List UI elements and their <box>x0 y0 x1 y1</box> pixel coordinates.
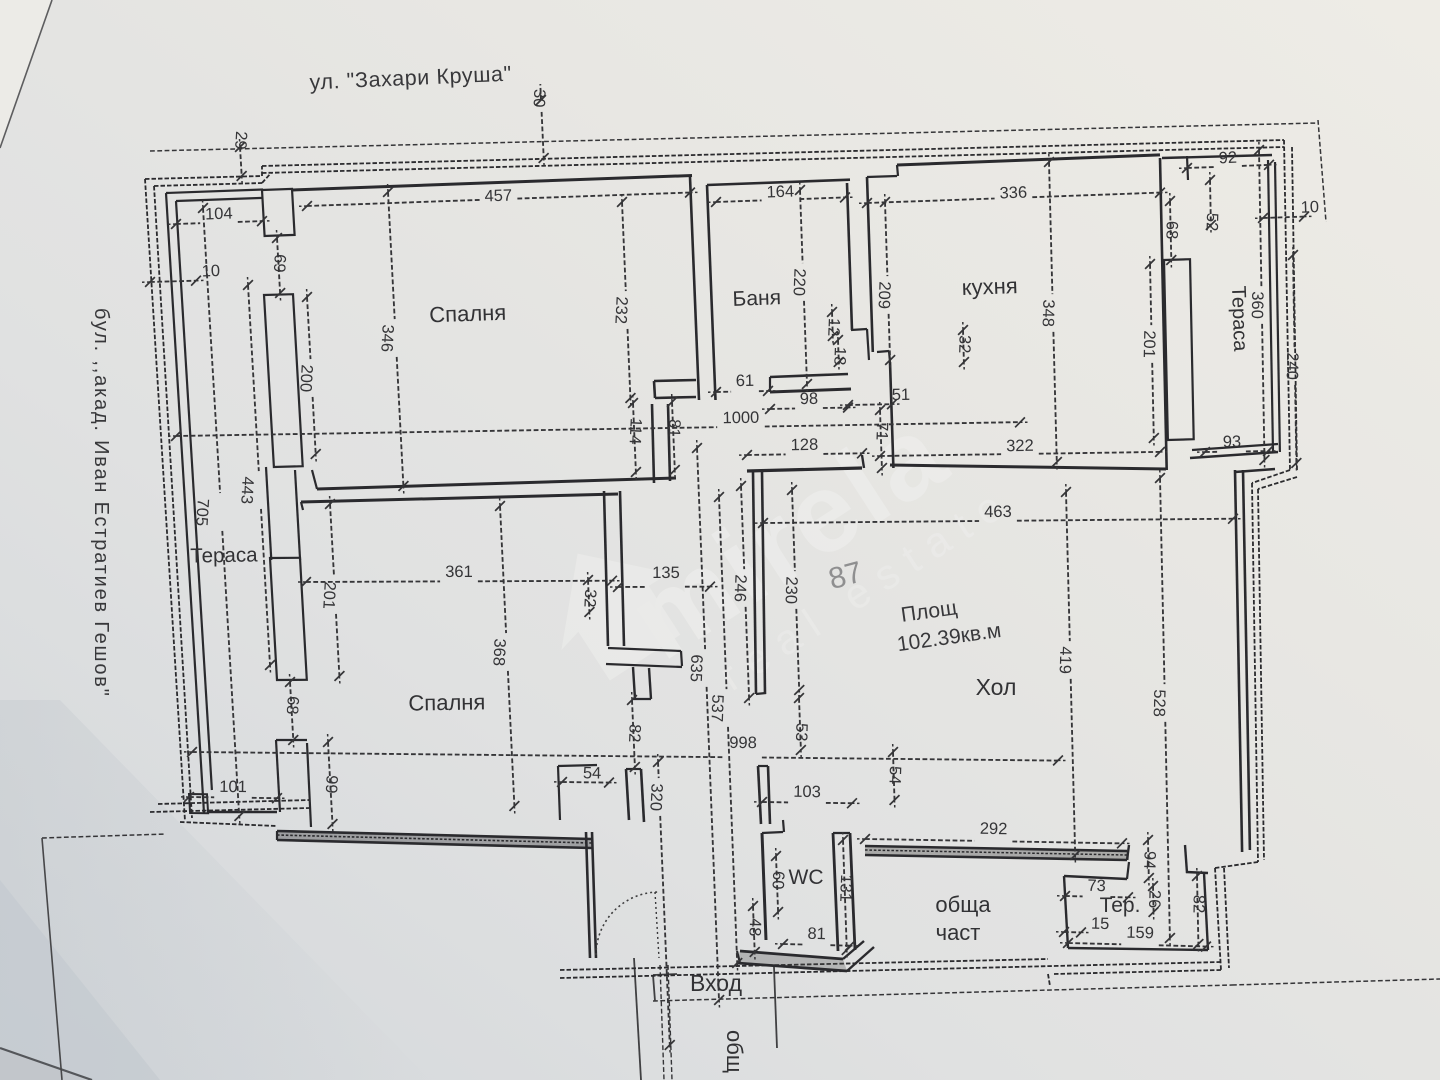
svg-text:159: 159 <box>1126 924 1154 943</box>
svg-text:69: 69 <box>270 254 289 273</box>
svg-text:336: 336 <box>999 184 1027 203</box>
svg-text:54: 54 <box>885 766 904 785</box>
svg-text:32: 32 <box>580 589 599 608</box>
svg-text:368: 368 <box>489 638 508 666</box>
svg-text:обща: обща <box>935 892 991 917</box>
svg-text:94: 94 <box>1140 851 1158 870</box>
svg-text:Баня: Баня <box>732 286 781 311</box>
svg-text:60: 60 <box>769 871 788 890</box>
svg-text:Хол: Хол <box>976 674 1017 700</box>
svg-text:Спалня: Спалня <box>429 300 507 328</box>
svg-text:15: 15 <box>1091 915 1110 933</box>
svg-text:114: 114 <box>626 418 645 445</box>
svg-text:101: 101 <box>219 778 247 796</box>
svg-text:бул. ,,акад. Иван Естратиев Ге: бул. ,,акад. Иван Естратиев Гешов" <box>90 308 112 698</box>
svg-text:635: 635 <box>686 654 705 682</box>
svg-text:29: 29 <box>231 131 250 150</box>
svg-text:528: 528 <box>1150 689 1169 717</box>
svg-text:68: 68 <box>1162 221 1180 240</box>
svg-text:54: 54 <box>583 764 602 782</box>
svg-text:53: 53 <box>792 723 811 742</box>
svg-text:346: 346 <box>377 324 396 352</box>
svg-text:68: 68 <box>283 696 302 715</box>
svg-text:246: 246 <box>730 574 749 602</box>
svg-text:463: 463 <box>984 503 1012 521</box>
svg-text:103: 103 <box>793 783 821 801</box>
svg-text:Спалня: Спалня <box>408 689 485 715</box>
svg-text:12: 12 <box>824 318 843 337</box>
svg-text:общ: общ <box>722 1030 747 1073</box>
svg-text:10: 10 <box>201 262 220 281</box>
svg-text:443: 443 <box>237 476 257 505</box>
svg-text:322: 322 <box>1006 437 1034 455</box>
svg-text:201: 201 <box>319 581 338 609</box>
svg-text:292: 292 <box>980 820 1008 838</box>
svg-text:73: 73 <box>1087 877 1106 895</box>
svg-text:82: 82 <box>625 724 644 743</box>
svg-text:82: 82 <box>1189 895 1207 914</box>
svg-text:71: 71 <box>872 422 891 441</box>
svg-text:128: 128 <box>791 436 819 454</box>
svg-text:457: 457 <box>484 187 512 206</box>
svg-text:348: 348 <box>1039 299 1058 327</box>
svg-text:361: 361 <box>445 563 473 581</box>
svg-text:Тераса: Тераса <box>1227 285 1251 352</box>
svg-text:98: 98 <box>800 390 819 408</box>
svg-text:135: 135 <box>652 564 680 582</box>
svg-text:220: 220 <box>790 268 809 296</box>
svg-text:81: 81 <box>665 419 684 438</box>
svg-text:164: 164 <box>766 183 794 202</box>
svg-text:52: 52 <box>1203 213 1221 232</box>
svg-text:419: 419 <box>1056 646 1075 674</box>
svg-text:200: 200 <box>296 364 316 392</box>
svg-text:61: 61 <box>736 372 755 390</box>
svg-text:104: 104 <box>205 205 233 224</box>
svg-text:201: 201 <box>1140 330 1159 358</box>
svg-text:230: 230 <box>782 576 801 604</box>
svg-text:209: 209 <box>875 281 894 309</box>
svg-text:81: 81 <box>807 925 826 943</box>
svg-text:232: 232 <box>611 296 630 324</box>
svg-text:кухня: кухня <box>961 273 1018 300</box>
svg-text:26: 26 <box>1145 890 1163 909</box>
svg-text:Вход: Вход <box>690 970 743 996</box>
svg-text:51: 51 <box>892 386 911 404</box>
svg-text:998: 998 <box>729 734 757 752</box>
svg-text:WC: WC <box>789 866 824 889</box>
svg-text:131: 131 <box>836 874 855 902</box>
svg-text:10: 10 <box>1300 198 1319 217</box>
svg-text:705: 705 <box>192 498 212 527</box>
svg-text:32: 32 <box>955 335 974 354</box>
svg-text:360: 360 <box>1248 291 1266 319</box>
svg-text:320: 320 <box>646 783 665 811</box>
svg-text:537: 537 <box>707 694 726 722</box>
svg-text:18: 18 <box>830 347 849 366</box>
svg-text:99: 99 <box>322 775 341 794</box>
svg-text:1000: 1000 <box>722 409 759 428</box>
svg-text:240: 240 <box>1283 352 1301 380</box>
svg-text:част: част <box>936 920 981 945</box>
svg-text:93: 93 <box>1223 433 1242 451</box>
svg-text:48: 48 <box>745 918 764 937</box>
svg-text:92: 92 <box>1218 149 1237 168</box>
svg-text:30: 30 <box>530 89 549 108</box>
